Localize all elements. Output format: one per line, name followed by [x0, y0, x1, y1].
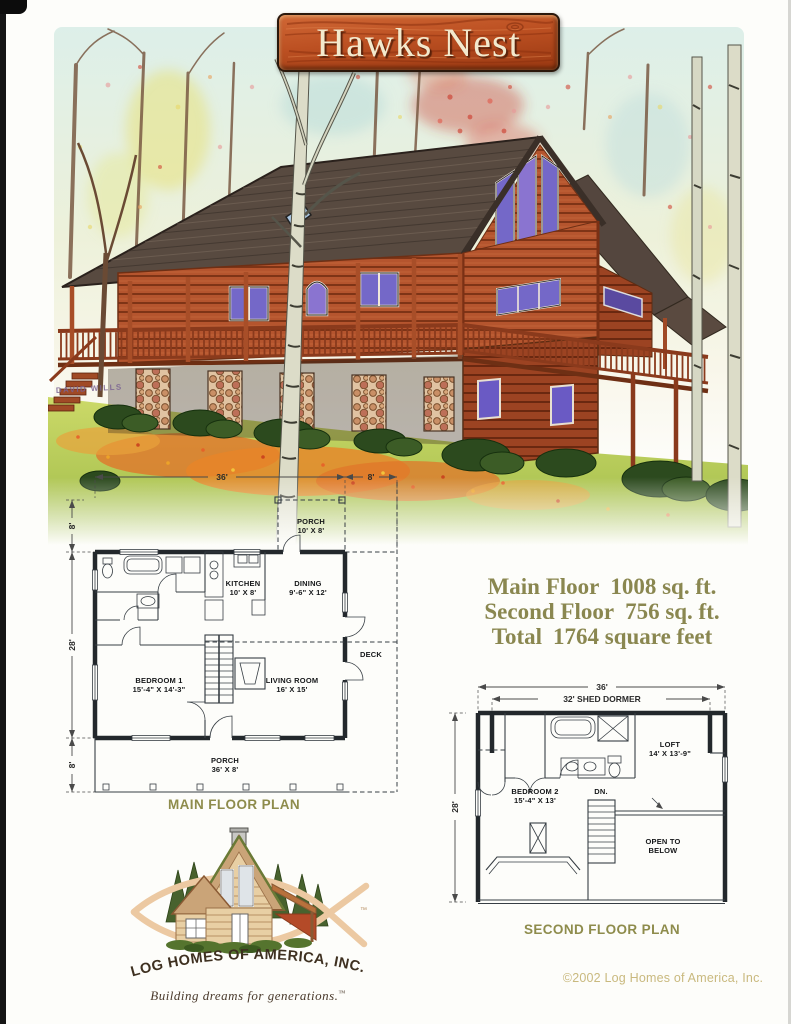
square-footage: Main Floor1008 sq. ft. Second Floor756 s…: [437, 574, 767, 649]
main-floor-plan: 36' 8' 8' 28' 8' PORCH 10' X 8': [62, 462, 407, 812]
second-stairs: [588, 800, 615, 900]
fish-trademark: ™: [360, 907, 367, 914]
exterior-walls: [93, 535, 366, 741]
svg-text:BELOW: BELOW: [649, 846, 679, 855]
front-porch: PORCH 36' X 8': [95, 738, 345, 792]
svg-text:14' X 13'-9": 14' X 13'-9": [649, 749, 691, 758]
svg-text:PORCH: PORCH: [211, 756, 239, 765]
svg-text:15'-4" X 13': 15'-4" X 13': [514, 796, 556, 805]
spec-row-main-floor: Main Floor1008 sq. ft.: [437, 574, 767, 599]
svg-text:8': 8': [67, 523, 77, 530]
svg-text:LOG HOMES OF AMERICA, INC.: LOG HOMES OF AMERICA, INC.: [129, 947, 366, 980]
svg-text:10' X 8': 10' X 8': [298, 526, 325, 535]
main-plan-dimensions: 36' 8' 8' 28' 8': [66, 472, 397, 792]
svg-text:16' X 15': 16' X 15': [276, 685, 307, 694]
second-plan-caption: SECOND FLOOR PLAN: [524, 922, 680, 937]
scan-corner-mark: [0, 0, 27, 14]
company-logo: ™: [120, 826, 376, 1010]
svg-text:DINING: DINING: [294, 579, 321, 588]
second-exterior-walls: [476, 713, 728, 904]
svg-text:8': 8': [368, 472, 375, 482]
svg-text:15'-4" X 14'-3": 15'-4" X 14'-3": [133, 685, 186, 694]
rear-porch: PORCH 10' X 8': [275, 497, 345, 550]
fireplace: [235, 658, 265, 689]
shower: [598, 716, 628, 741]
svg-text:36' X 8': 36' X 8': [212, 765, 239, 774]
second-floor-plan: 36' 32' SHED DORMER 28': [442, 672, 772, 952]
svg-text:36': 36': [216, 472, 227, 482]
svg-text:LIVING ROOM: LIVING ROOM: [266, 676, 319, 685]
svg-text:BEDROOM 1: BEDROOM 1: [135, 676, 182, 685]
spec-row-second-floor: Second Floor756 sq. ft.: [437, 599, 767, 624]
svg-text:32' SHED DORMER: 32' SHED DORMER: [563, 694, 641, 704]
svg-text:DECK: DECK: [360, 650, 382, 659]
svg-text:9'-6" X 12': 9'-6" X 12': [289, 588, 327, 597]
plan-title: Hawks Nest: [316, 19, 520, 66]
svg-text:36': 36': [596, 682, 607, 692]
svg-text:28': 28': [67, 639, 77, 650]
main-plan-caption: MAIN FLOOR PLAN: [168, 797, 300, 812]
logo-company-text: LOG HOMES OF AMERICA, INC.: [129, 947, 366, 980]
title-banner: Hawks Nest: [277, 13, 560, 72]
svg-text:KITCHEN: KITCHEN: [226, 579, 261, 588]
second-interior: [478, 713, 725, 900]
svg-text:28': 28': [450, 801, 460, 812]
svg-text:DN.: DN.: [594, 787, 608, 796]
svg-text:BEDROOM 2: BEDROOM 2: [511, 787, 558, 796]
scan-edge-strip: [0, 0, 6, 1024]
stairs: [205, 635, 233, 703]
brochure-page: DAVID WILLS Hawks Nest: [0, 0, 791, 1024]
copyright-notice: ©2002 Log Homes of America, Inc.: [558, 971, 768, 985]
deck: DECK: [345, 482, 397, 792]
spec-row-total: Total1764 square feet: [437, 624, 767, 649]
svg-text:8': 8': [67, 762, 77, 769]
svg-text:OPEN TO: OPEN TO: [645, 837, 680, 846]
svg-text:10' X 8': 10' X 8': [230, 588, 257, 597]
logo-tagline: Building dreams for generations.™: [150, 988, 346, 1003]
svg-text:LOFT: LOFT: [660, 740, 681, 749]
svg-text:PORCH: PORCH: [297, 517, 325, 526]
